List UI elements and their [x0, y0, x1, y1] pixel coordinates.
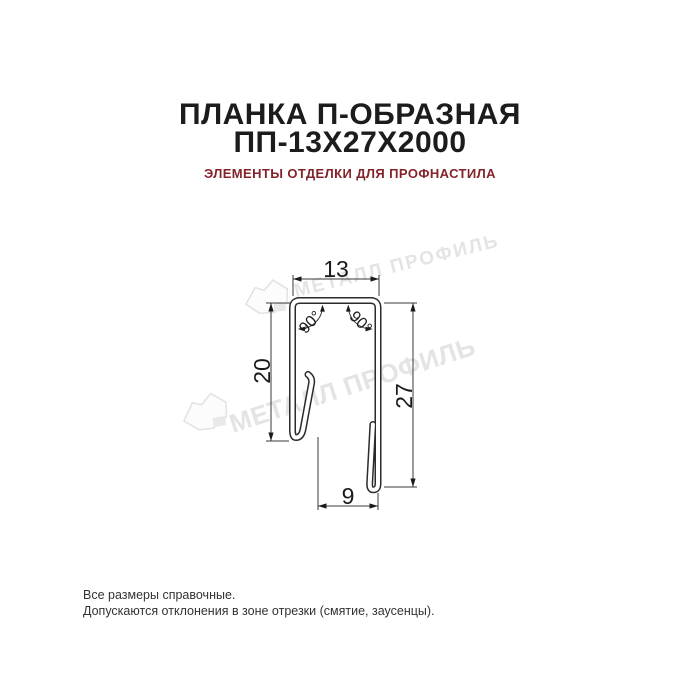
angle-label-left: 90° — [296, 308, 325, 337]
angle-right: 90° — [346, 305, 375, 337]
footer-note-line1: Все размеры справочные. — [83, 588, 435, 604]
metal-profil-logo-icon — [242, 277, 293, 320]
dim-label-13: 13 — [323, 256, 349, 282]
watermark-top: МЕТАЛЛ ПРОФИЛЬ — [242, 231, 502, 320]
metal-profil-logo-icon — [178, 390, 233, 438]
dim-label-9: 9 — [342, 483, 355, 509]
footer-note-line2: Допускаются отклонения в зоне отрезки (с… — [83, 604, 435, 620]
dim-label-27: 27 — [391, 383, 417, 409]
watermark-middle: МЕТАЛЛ ПРОФИЛЬ — [178, 331, 479, 439]
dim-label-20: 20 — [249, 358, 275, 384]
footer-notes: Все размеры справочные. Допускаются откл… — [83, 588, 435, 619]
angle-label-right: 90° — [346, 308, 375, 337]
angle-left: 90° — [296, 305, 325, 337]
dimension-right-height: 27 — [384, 303, 417, 487]
